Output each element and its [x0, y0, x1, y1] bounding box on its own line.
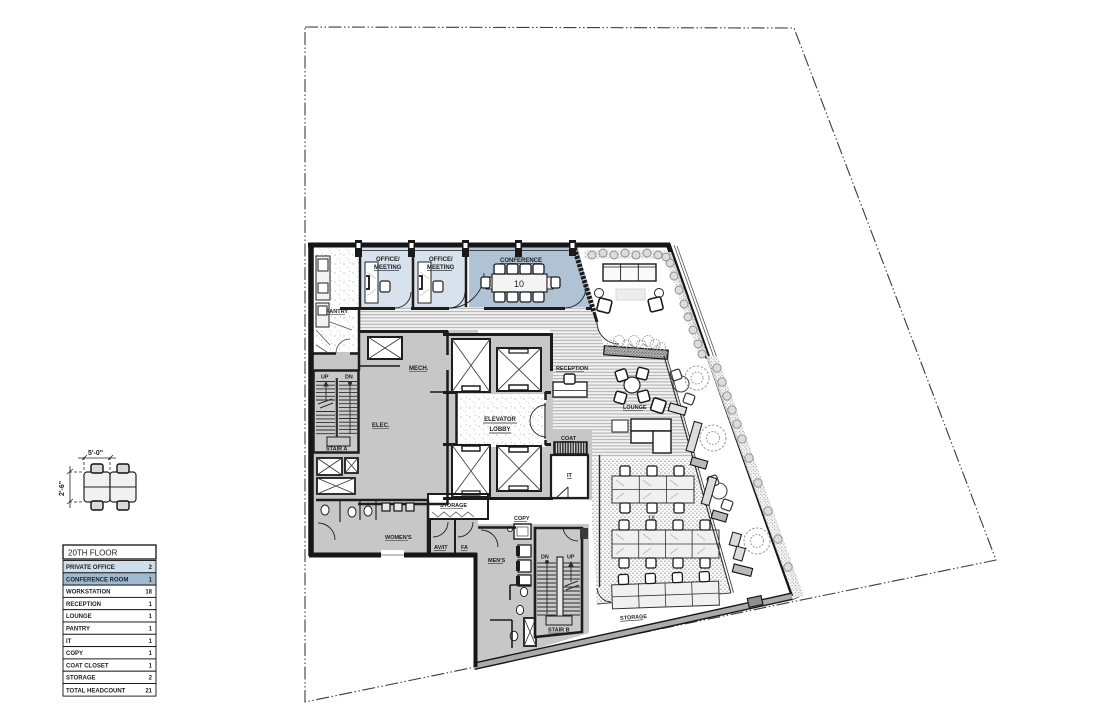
- svg-text:UP: UP: [321, 375, 329, 381]
- svg-text:20TH FLOOR: 20TH FLOOR: [68, 549, 118, 558]
- svg-text:ELEVATOR: ELEVATOR: [484, 417, 516, 423]
- svg-text:RECEPTION: RECEPTION: [66, 602, 101, 608]
- svg-text:OFFICE/: OFFICE/: [376, 257, 400, 263]
- svg-text:10: 10: [514, 279, 524, 289]
- svg-text:MEETING: MEETING: [427, 265, 455, 271]
- svg-text:MEETING: MEETING: [374, 265, 402, 271]
- svg-text:21: 21: [145, 688, 152, 694]
- svg-text:RECEPTION: RECEPTION: [556, 366, 588, 372]
- svg-text:STORAGE: STORAGE: [66, 676, 96, 682]
- svg-text:COPY: COPY: [66, 651, 83, 657]
- svg-text:COPY: COPY: [514, 516, 530, 522]
- svg-text:STORAGE: STORAGE: [440, 503, 467, 509]
- svg-text:AV/IT: AV/IT: [434, 545, 448, 551]
- svg-text:MECH.: MECH.: [409, 366, 429, 372]
- svg-text:18: 18: [145, 590, 152, 596]
- svg-text:DN: DN: [541, 555, 549, 561]
- svg-text:STAIR A: STAIR A: [326, 447, 347, 453]
- svg-text:LOUNGE: LOUNGE: [66, 614, 92, 620]
- svg-text:LOBBY: LOBBY: [490, 427, 511, 433]
- svg-text:18: 18: [648, 516, 655, 522]
- svg-text:STAIR B: STAIR B: [548, 628, 570, 634]
- svg-text:IT: IT: [66, 639, 72, 645]
- svg-text:5'-0": 5'-0": [88, 450, 103, 457]
- svg-text:UP: UP: [567, 555, 575, 561]
- svg-text:CONFERENCE: CONFERENCE: [500, 258, 542, 264]
- svg-text:2'-6": 2'-6": [59, 481, 66, 496]
- svg-text:PRIVATE OFFICE: PRIVATE OFFICE: [66, 565, 115, 571]
- svg-text:TOTAL HEADCOUNT: TOTAL HEADCOUNT: [66, 688, 126, 694]
- svg-text:PANTRY: PANTRY: [66, 627, 90, 633]
- svg-text:MEN'S: MEN'S: [488, 558, 506, 564]
- svg-text:CONFERENCE ROOM: CONFERENCE ROOM: [66, 577, 128, 583]
- svg-text:PANTRY: PANTRY: [326, 309, 348, 315]
- svg-text:LOUNGE: LOUNGE: [623, 405, 647, 411]
- svg-text:WOMEN'S: WOMEN'S: [385, 535, 412, 541]
- svg-text:COAT: COAT: [561, 436, 577, 442]
- svg-text:ELEC.: ELEC.: [372, 423, 390, 429]
- svg-text:FA: FA: [461, 545, 468, 551]
- svg-text:WORKSTATION: WORKSTATION: [66, 590, 110, 596]
- svg-text:OFFICE/: OFFICE/: [429, 257, 453, 263]
- svg-text:COAT CLOSET: COAT CLOSET: [66, 663, 109, 669]
- svg-text:DN: DN: [345, 375, 353, 381]
- svg-text:IT: IT: [567, 473, 573, 479]
